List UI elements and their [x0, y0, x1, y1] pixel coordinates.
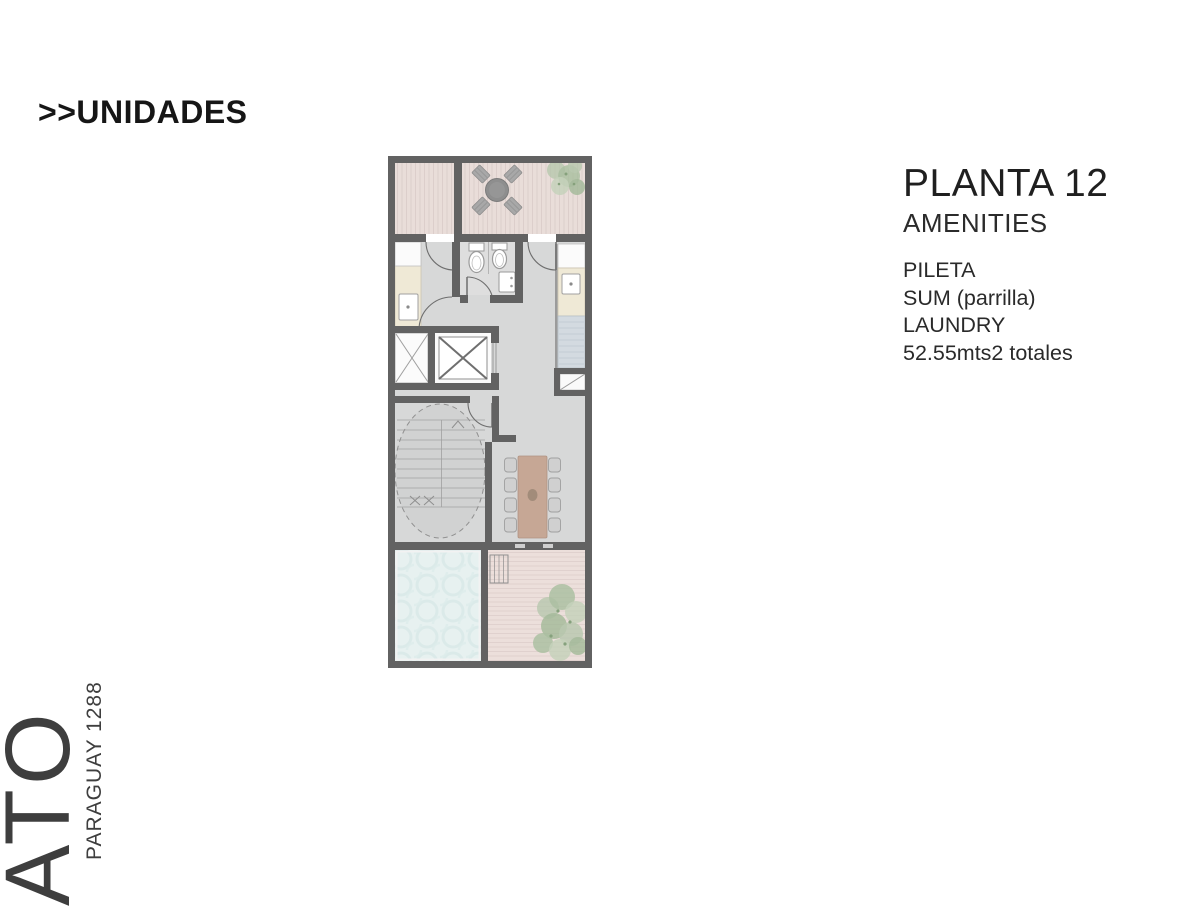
floor-subtitle: AMENITIES — [903, 208, 1193, 238]
brand-block: ATO PARAGUAY 1288 — [2, 681, 105, 906]
amenity-laundry: LAUNDRY — [903, 312, 1193, 340]
stove-icon — [558, 316, 585, 368]
pool-water — [395, 550, 481, 661]
floor-title: PLANTA 12 — [903, 163, 1193, 205]
kitchen-counter — [555, 244, 585, 368]
page-title: >>UNIDADES — [38, 94, 248, 131]
laundry-counter — [395, 242, 421, 330]
sink-icon — [499, 272, 515, 292]
brand-logo: ATO — [2, 681, 74, 906]
toilet-icon — [492, 243, 507, 269]
elevator-icon — [435, 333, 496, 383]
info-panel: PLANTA 12 AMENITIES PILETA SUM (parrilla… — [903, 163, 1193, 367]
stairs-icon — [395, 404, 485, 538]
service-shaft-icon — [560, 374, 585, 390]
amenity-pileta: PILETA — [903, 257, 1193, 285]
brochure-page: >>UNIDADES PLANTA 12 AMENITIES PILETA SU… — [0, 0, 1200, 910]
terrace-left-deck — [395, 163, 454, 234]
service-shaft-icon — [395, 333, 428, 383]
floor-plan — [388, 156, 592, 668]
total-area: 52.55mts2 totales — [903, 340, 1193, 368]
brand-address: PARAGUAY 1288 — [84, 681, 105, 860]
toilet-icon — [469, 243, 484, 273]
amenities-list: PILETA SUM (parrilla) LAUNDRY 52.55mts2 … — [903, 257, 1193, 367]
amenity-sum: SUM (parrilla) — [903, 285, 1193, 313]
